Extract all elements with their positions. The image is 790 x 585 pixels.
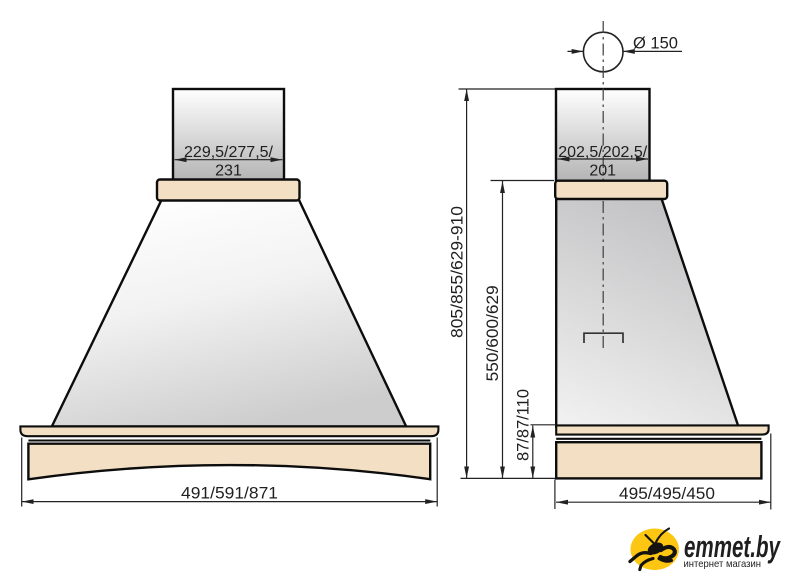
svg-text:202,5/202,5/: 202,5/202,5/ bbox=[558, 144, 648, 161]
svg-text:201: 201 bbox=[589, 163, 616, 180]
svg-text:Ø 150: Ø 150 bbox=[633, 35, 678, 53]
svg-text:87/87/110: 87/87/110 bbox=[513, 389, 532, 461]
svg-text:550/600/629: 550/600/629 bbox=[483, 285, 502, 381]
svg-text:495/495/450: 495/495/450 bbox=[619, 484, 715, 503]
svg-text:491/591/871: 491/591/871 bbox=[181, 483, 278, 502]
svg-text:231: 231 bbox=[215, 163, 242, 180]
svg-text:805/855/629-910: 805/855/629-910 bbox=[447, 206, 466, 338]
svg-text:интернет магазин: интернет магазин bbox=[684, 558, 762, 570]
svg-text:229,5/277,5/: 229,5/277,5/ bbox=[184, 144, 274, 161]
